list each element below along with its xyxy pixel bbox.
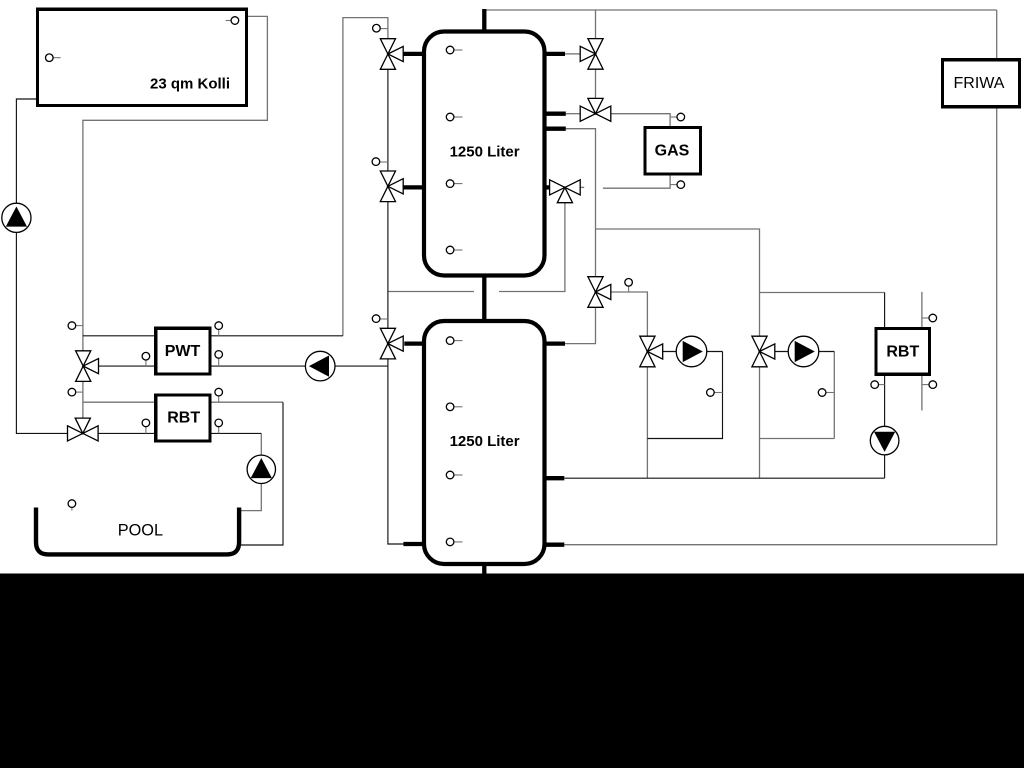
svg-text:POOL: POOL [118, 522, 163, 540]
svg-text:RBT: RBT [886, 343, 919, 360]
svg-text:1250 Liter: 1250 Liter [450, 433, 520, 450]
svg-text:1250 Liter: 1250 Liter [450, 144, 520, 161]
svg-text:RBT: RBT [167, 410, 200, 427]
svg-text:23 qm Kolli: 23 qm Kolli [150, 76, 230, 93]
svg-text:GAS: GAS [655, 143, 690, 160]
svg-text:FRIWA: FRIWA [954, 75, 1005, 92]
svg-text:PWT: PWT [165, 343, 201, 360]
